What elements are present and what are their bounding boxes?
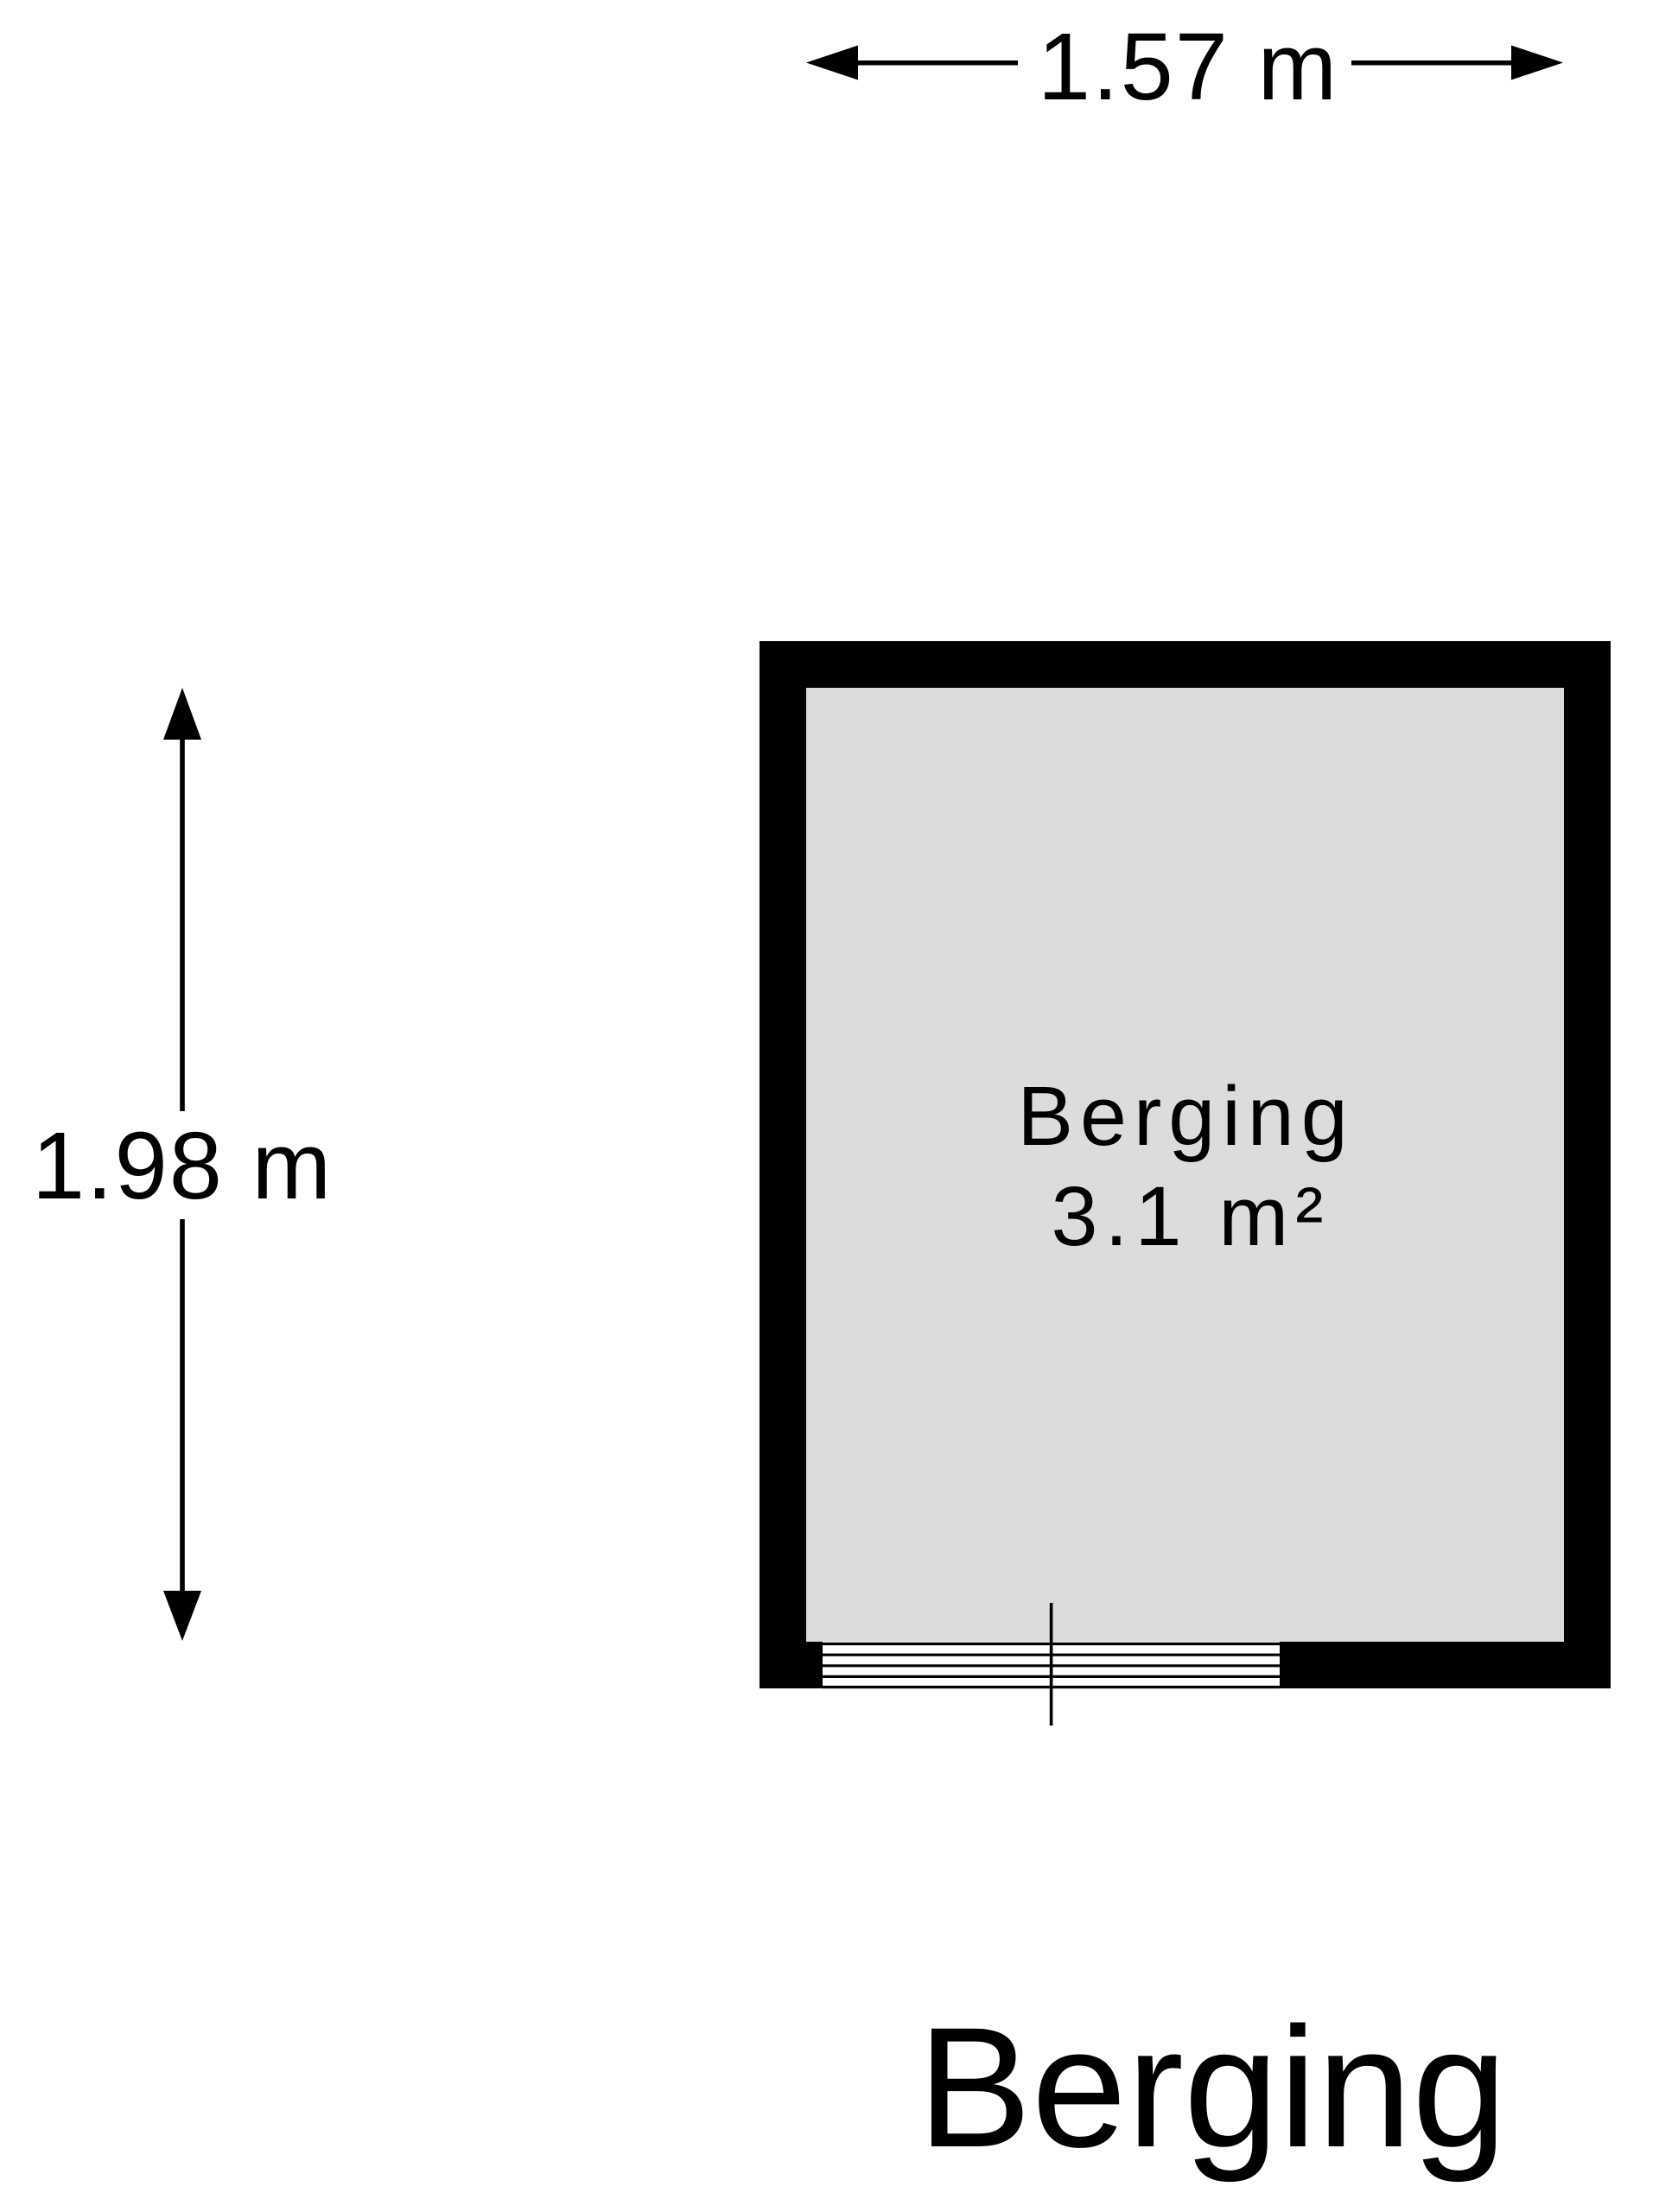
svg-text:3.1 m²: 3.1 m² (1052, 1169, 1331, 1263)
svg-text:Berging: Berging (918, 1992, 1507, 2183)
svg-text:1.57 m: 1.57 m (1038, 14, 1338, 120)
svg-text:1.98 m: 1.98 m (32, 1113, 333, 1219)
svg-text:Berging: Berging (1017, 1069, 1354, 1163)
